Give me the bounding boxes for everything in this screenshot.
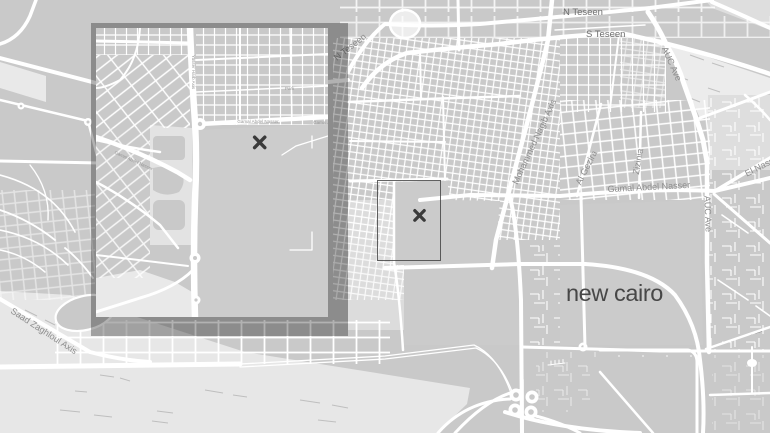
svg-text:Gamal Abdel Nasser: Gamal Abdel Nasser: [237, 119, 279, 124]
svg-text:S Teseen: S Teseen: [586, 29, 625, 40]
svg-text:Park: Park: [285, 86, 295, 91]
svg-text:AUC Ave: AUC Ave: [702, 196, 713, 233]
svg-text:Yasser Harb Axis: Yasser Harb Axis: [191, 55, 196, 90]
svg-text:N Teseen: N Teseen: [563, 7, 603, 18]
svg-text:new cairo: new cairo: [566, 280, 663, 306]
